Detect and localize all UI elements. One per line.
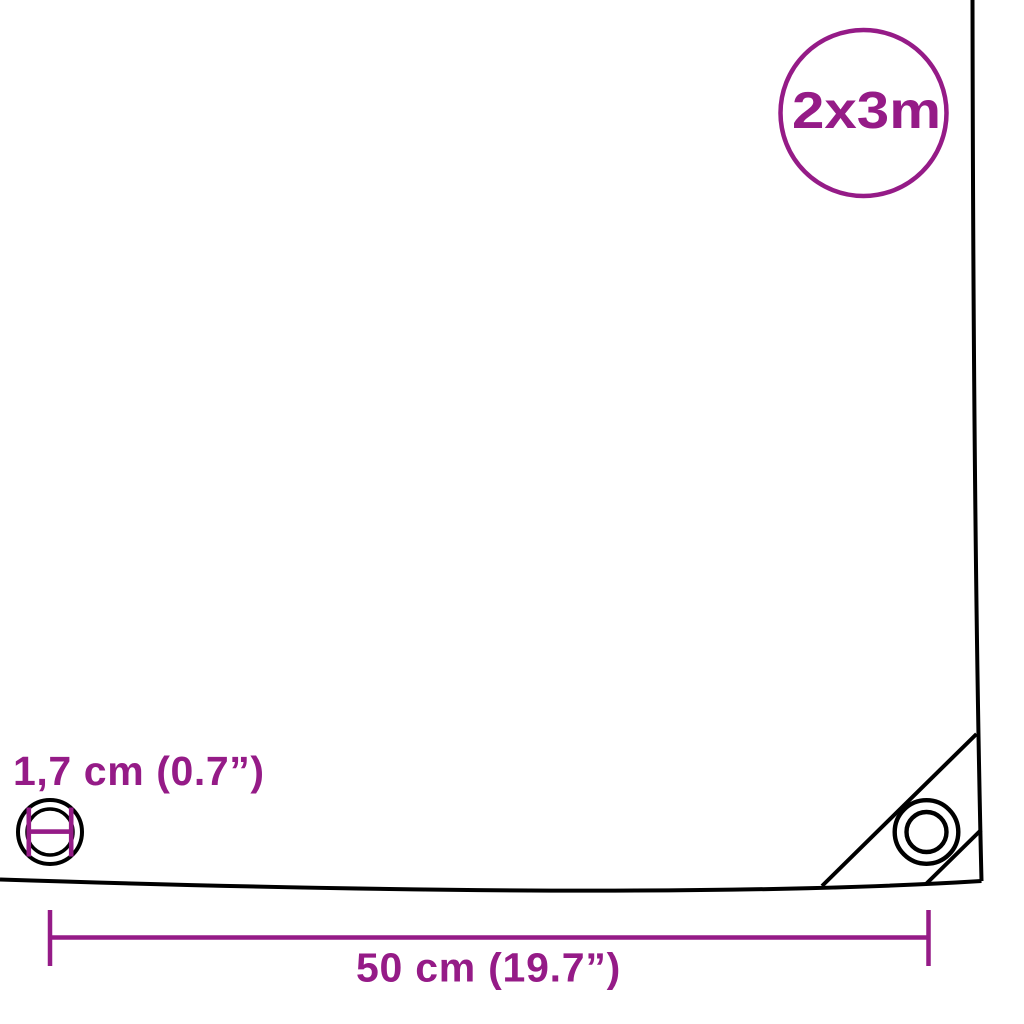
- svg-text:50 cm (19.7”): 50 cm (19.7”): [356, 945, 621, 991]
- svg-text:1,7 cm (0.7”): 1,7 cm (0.7”): [13, 748, 265, 794]
- svg-text:2x3m: 2x3m: [792, 82, 941, 140]
